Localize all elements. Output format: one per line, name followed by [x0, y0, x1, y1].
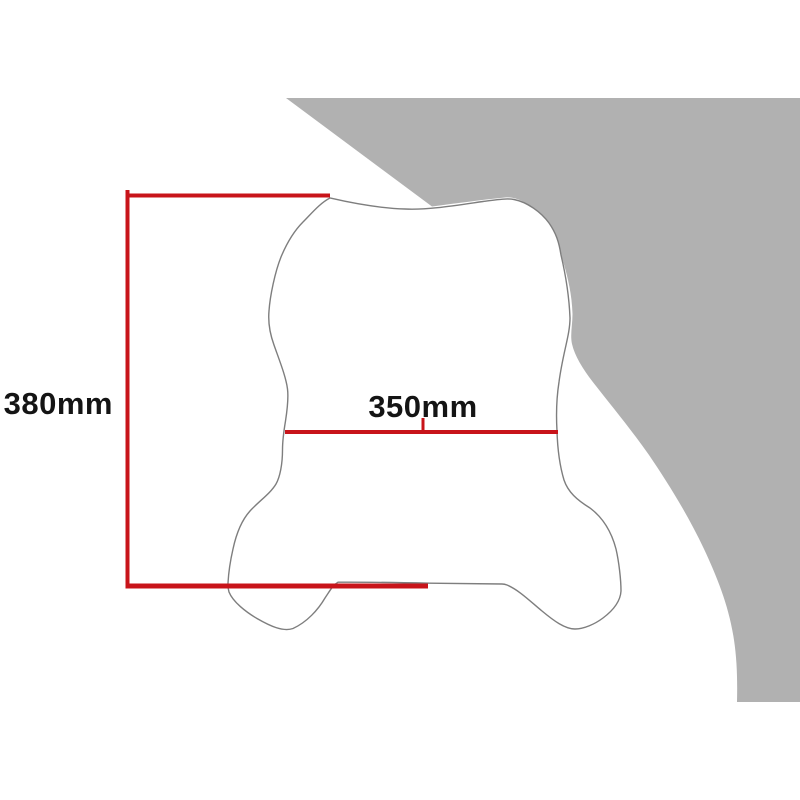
- height-dimension-label: 380mm: [4, 386, 113, 421]
- windscreen-dimension-diagram: 380mm 350mm: [0, 0, 800, 800]
- height-dimension-bottom-line: [126, 584, 429, 589]
- height-dimension-top-line: [126, 194, 331, 198]
- width-dimension-label: 350mm: [368, 389, 477, 424]
- diagram-canvas: 380mm 350mm: [0, 0, 800, 800]
- height-dimension-vertical-line: [126, 190, 130, 588]
